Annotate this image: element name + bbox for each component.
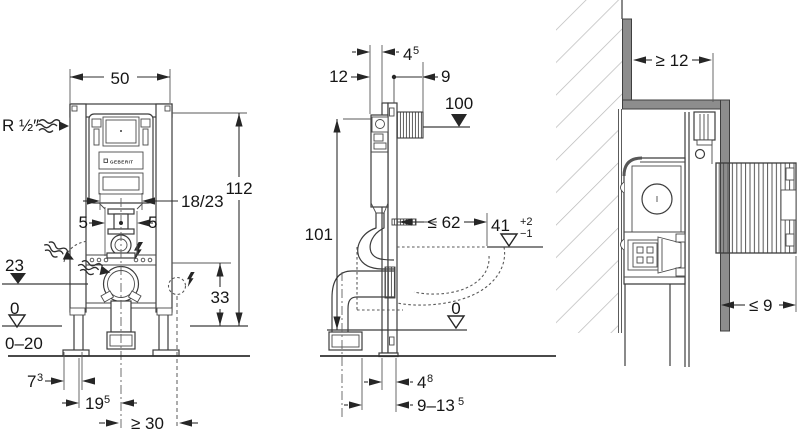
svg-text:33: 33 — [211, 288, 230, 307]
wc-bowl-hidden-outline — [357, 247, 505, 310]
svg-text:≥ 30: ≥ 30 — [131, 414, 164, 431]
side-view: 4 5 12 9 100 101 — [305, 45, 556, 420]
svg-text:5: 5 — [79, 213, 88, 232]
svg-text:−1: −1 — [520, 228, 533, 240]
plan-view: ≥ 12 — [556, 0, 796, 367]
svg-text:≤ 9: ≤ 9 — [749, 296, 773, 315]
dim-9-13-5: 9–13 5 — [344, 358, 464, 415]
water-flow-icon — [36, 120, 69, 133]
svg-text:≤ 62: ≤ 62 — [428, 213, 461, 232]
level-marker-23: 23 — [5, 256, 26, 284]
svg-text:9–13: 9–13 — [417, 396, 455, 415]
wall-hatching — [556, 109, 618, 333]
dim-9: 9 — [392, 62, 451, 112]
svg-text:5: 5 — [104, 394, 110, 406]
drywall-panel-corner — [623, 100, 721, 109]
wall-hatching — [556, 0, 622, 109]
svg-text:+2: +2 — [520, 216, 533, 228]
fill-valve — [92, 119, 101, 127]
dim-max-9: ≤ 9 — [721, 256, 796, 315]
level-triangle-open — [448, 316, 464, 328]
installation-diagram-page: GEBERIT — [0, 0, 800, 431]
dim-7-3: 7 3 — [27, 352, 95, 391]
svg-text:4: 4 — [417, 373, 426, 392]
foot-plate — [153, 350, 179, 356]
floor-range-label: 0–20 — [5, 334, 43, 353]
rail-hole — [696, 150, 705, 159]
svg-text:4: 4 — [403, 45, 412, 64]
level-marker-0-side: 0 — [448, 299, 464, 328]
water-supply-label: R ½″ — [2, 116, 69, 135]
wall-sleeve — [385, 267, 395, 298]
corner-screw-icon — [165, 106, 170, 111]
svg-text:19: 19 — [85, 394, 104, 413]
svg-text:3: 3 — [37, 372, 43, 384]
level-marker-0: 0 — [9, 299, 25, 327]
dim-max-62: ≤ 62 — [399, 213, 487, 246]
level-marker-41: 41 +2 −1 — [487, 216, 543, 247]
svg-text:0: 0 — [451, 299, 460, 318]
corner-screw-icon — [72, 106, 77, 111]
level-triangle-open — [501, 234, 517, 246]
dim-min-30: ≥ 30 — [99, 414, 198, 431]
svg-text:≥ 12: ≥ 12 — [656, 51, 689, 70]
svg-text:12: 12 — [329, 67, 348, 86]
dim-width-50: 50 — [70, 69, 170, 103]
lightning-icon — [187, 272, 195, 287]
front-view: GEBERIT — [2, 69, 253, 431]
actuator-protection-box — [397, 112, 423, 138]
svg-text:18/23: 18/23 — [181, 192, 224, 211]
technical-drawing: GEBERIT — [0, 0, 800, 431]
flush-valve — [141, 119, 150, 127]
concealed-cistern: GEBERIT — [89, 114, 153, 209]
flush-mechanism-plan — [628, 234, 685, 276]
protection-box-plan — [716, 163, 796, 253]
brand-logo-icon — [104, 159, 108, 163]
svg-text:7: 7 — [27, 372, 36, 391]
svg-text:8: 8 — [427, 373, 433, 385]
dim-19-5: 19 5 — [62, 358, 137, 413]
dim-min-12: ≥ 12 — [633, 51, 713, 102]
level-marker-100: 100 — [423, 94, 473, 127]
svg-text:5: 5 — [458, 396, 464, 408]
brand-plate: GEBERIT — [99, 152, 143, 169]
dim-height-33: 33 — [172, 263, 231, 326]
level-triangle-open — [9, 315, 25, 327]
cistern-plan — [621, 158, 686, 284]
svg-text:5: 5 — [413, 45, 419, 57]
svg-text:112: 112 — [225, 179, 252, 198]
svg-text:100: 100 — [445, 94, 473, 113]
dim-12: 12 — [329, 67, 370, 86]
telescopic-leg — [159, 310, 168, 351]
svg-text:41: 41 — [491, 216, 510, 235]
brand-label: GEBERIT — [110, 159, 134, 164]
foot-plate — [63, 350, 89, 356]
svg-text:50: 50 — [111, 69, 130, 88]
dim-101: 101 — [305, 119, 371, 330]
telescopic-leg — [74, 310, 83, 351]
svg-text:R ½″: R ½″ — [2, 116, 39, 135]
svg-text:5: 5 — [148, 213, 157, 232]
level-triangle-filled — [451, 114, 467, 127]
cistern-side — [371, 115, 388, 213]
svg-text:23: 23 — [5, 256, 24, 275]
svg-text:9: 9 — [441, 67, 450, 86]
drywall-panel-side — [623, 19, 632, 108]
level-triangle-filled — [10, 273, 26, 284]
svg-text:101: 101 — [305, 225, 333, 244]
